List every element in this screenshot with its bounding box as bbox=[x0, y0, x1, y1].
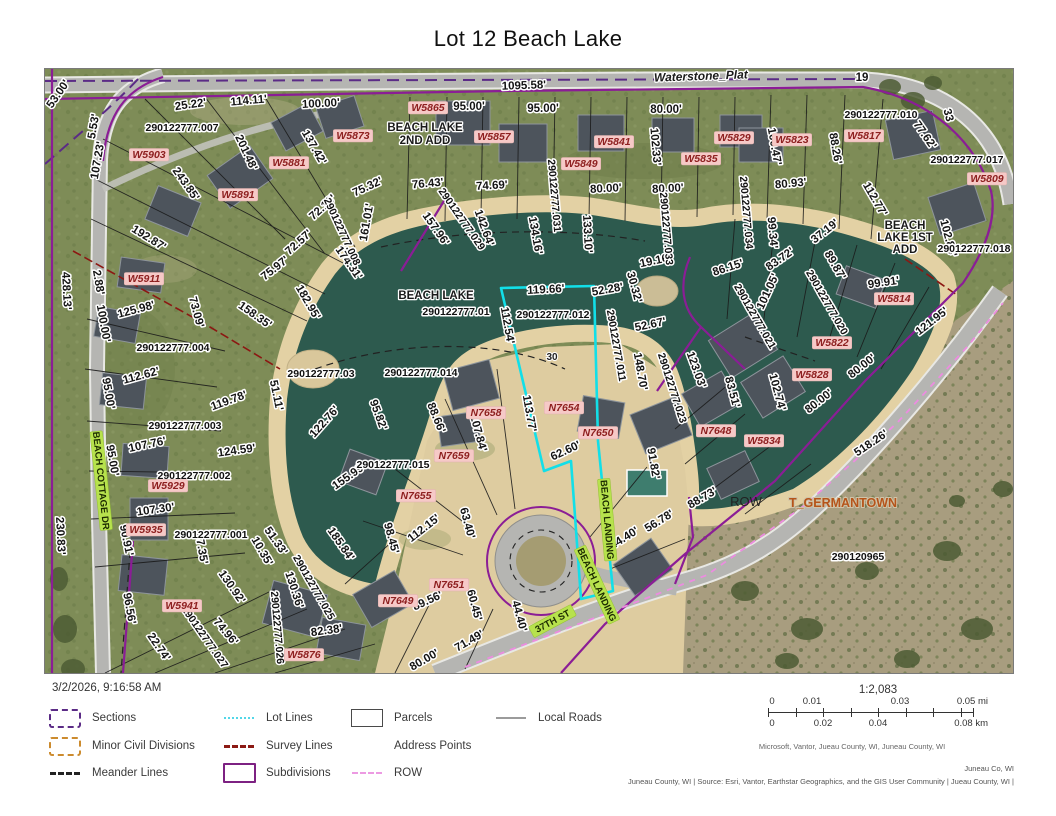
svg-text:N7655: N7655 bbox=[401, 490, 432, 502]
legend-item-sections: Sections bbox=[48, 708, 136, 728]
svg-text:W5822: W5822 bbox=[815, 337, 848, 349]
map-label-addr: W5935 bbox=[126, 524, 166, 537]
map-label-plat: LAKE 1ST bbox=[877, 232, 933, 244]
svg-text:LAKE 1ST: LAKE 1ST bbox=[877, 232, 933, 244]
scale-km-labels: 0 0.02 0.04 0.08 km bbox=[768, 718, 988, 729]
map-label-pid: 290122777.004 bbox=[137, 342, 210, 354]
svg-text:W5814: W5814 bbox=[877, 293, 910, 305]
svg-text:230.83': 230.83' bbox=[53, 517, 67, 556]
legend-item-meander-lines: Meander Lines bbox=[48, 763, 168, 783]
svg-text:W5834: W5834 bbox=[747, 435, 780, 447]
map-label-addr: N7658 bbox=[466, 407, 506, 420]
svg-text:290122777.01: 290122777.01 bbox=[422, 306, 489, 318]
map-label-addr: W5881 bbox=[269, 157, 309, 170]
svg-text:W5903: W5903 bbox=[132, 149, 165, 161]
map-label-pid: 290122777.001 bbox=[175, 529, 248, 541]
map-label-addr: W5829 bbox=[714, 132, 754, 145]
svg-text:30: 30 bbox=[546, 352, 558, 363]
map-label-addr: N7659 bbox=[434, 450, 474, 463]
county-attribution: Juneau Co, WI bbox=[964, 764, 1014, 773]
svg-text:W5828: W5828 bbox=[795, 369, 828, 381]
map-label-town: T_GERMANTOWN bbox=[789, 496, 897, 510]
legend-item-lot-lines: Lot Lines bbox=[222, 708, 313, 728]
map-label-addr: W5809 bbox=[967, 173, 1007, 186]
svg-text:N7649: N7649 bbox=[383, 595, 414, 607]
map-label-addr: W5876 bbox=[284, 649, 324, 662]
map-label-pid: 290122777.01 bbox=[422, 306, 489, 318]
survey-swatch-icon bbox=[222, 736, 256, 756]
address-points-swatch bbox=[350, 736, 384, 756]
map-label-plat: BEACH LAKE bbox=[387, 122, 463, 134]
svg-text:BEACH: BEACH bbox=[885, 220, 926, 232]
svg-text:W5835: W5835 bbox=[684, 153, 717, 165]
svg-text:290122777.001: 290122777.001 bbox=[175, 529, 248, 541]
legend-label: Local Roads bbox=[538, 712, 602, 724]
lotlines-swatch-icon bbox=[222, 708, 256, 728]
svg-text:19: 19 bbox=[856, 72, 869, 84]
aerial-map: 53.00'25.22'114.11'100.00'1095.58'95.00'… bbox=[45, 69, 1013, 673]
map-label-addr: W5873 bbox=[333, 130, 373, 143]
map-label-dim: 80.00' bbox=[650, 104, 682, 116]
meander-swatch-icon bbox=[48, 763, 82, 783]
map-label-addr: N7654 bbox=[544, 402, 584, 415]
map-label-addr: N7655 bbox=[396, 490, 436, 503]
svg-text:W5876: W5876 bbox=[287, 649, 320, 661]
svg-text:290122777.018: 290122777.018 bbox=[938, 243, 1011, 255]
svg-text:W5911: W5911 bbox=[128, 273, 161, 285]
svg-text:N7648: N7648 bbox=[701, 425, 732, 437]
map-label-addr: N7650 bbox=[578, 427, 618, 440]
legend-item-row: ROW bbox=[350, 763, 422, 783]
map-label-pid: 290122777.017 bbox=[931, 154, 1004, 166]
map-label-addr: W5817 bbox=[844, 130, 884, 143]
svg-text:W5841: W5841 bbox=[597, 136, 630, 148]
svg-text:290122777.010: 290122777.010 bbox=[845, 109, 918, 121]
svg-text:W5929: W5929 bbox=[151, 480, 184, 492]
svg-text:290122777.012: 290122777.012 bbox=[517, 309, 590, 321]
map-label-dim: 1095.58' bbox=[502, 79, 547, 93]
svg-text:N7654: N7654 bbox=[549, 402, 580, 414]
map-label-addr: W5841 bbox=[594, 136, 634, 149]
map-label-addr: W5903 bbox=[129, 149, 169, 162]
legend-label: Address Points bbox=[394, 740, 471, 752]
legend-item-subdivisions: Subdivisions bbox=[222, 763, 331, 783]
map-label-addr: W5929 bbox=[148, 480, 188, 493]
legend-label: Minor Civil Divisions bbox=[92, 740, 195, 752]
subdivisions-swatch-icon bbox=[222, 763, 256, 783]
svg-text:W5829: W5829 bbox=[717, 132, 750, 144]
map-label-dim: 19 bbox=[856, 72, 869, 84]
svg-text:W5849: W5849 bbox=[564, 158, 597, 170]
svg-text:80.00': 80.00' bbox=[650, 104, 682, 116]
scale-bar: 1:2,083 0 0.01 0.03 0.05 mi 0 0.02 0.04 … bbox=[768, 684, 988, 729]
svg-text:T_GERMANTOWN: T_GERMANTOWN bbox=[789, 496, 897, 510]
map-label-addr: W5911 bbox=[124, 273, 164, 286]
map-label-addr: W5814 bbox=[874, 293, 914, 306]
map-label-pid: 290122777.003 bbox=[149, 420, 222, 432]
map-label-pid: 290122777.018 bbox=[938, 243, 1011, 255]
svg-text:BEACH LAKE: BEACH LAKE bbox=[387, 122, 463, 134]
lake-island-pond bbox=[636, 276, 678, 306]
svg-text:133.10': 133.10' bbox=[580, 215, 594, 254]
map-label-dim: 230.83' bbox=[53, 517, 67, 556]
svg-text:W5881: W5881 bbox=[272, 157, 305, 169]
svg-text:95.00': 95.00' bbox=[527, 103, 559, 115]
svg-text:119.66': 119.66' bbox=[527, 283, 565, 297]
svg-text:290122777.03: 290122777.03 bbox=[287, 368, 354, 380]
svg-text:W5817: W5817 bbox=[847, 130, 881, 142]
map-label-plat: BEACH LAKE bbox=[398, 290, 474, 302]
map-label-dim: 428.13' bbox=[59, 272, 73, 311]
svg-text:W5857: W5857 bbox=[477, 131, 511, 143]
map-label-sm: 30 bbox=[546, 352, 558, 363]
legend-label: Sections bbox=[92, 712, 136, 724]
map-label-pid: 290122777.03 bbox=[287, 368, 354, 380]
legend-label: Subdivisions bbox=[266, 767, 331, 779]
svg-text:290122777.017: 290122777.017 bbox=[931, 154, 1004, 166]
map-label-pid: 290122777.010 bbox=[845, 109, 918, 121]
map-label-addr: N7651 bbox=[429, 579, 469, 592]
mcd-swatch-icon bbox=[48, 736, 82, 756]
svg-text:N7658: N7658 bbox=[471, 407, 502, 419]
svg-text:W5865: W5865 bbox=[411, 102, 444, 114]
map-label-addr: W5834 bbox=[744, 435, 784, 448]
page-title: Lot 12 Beach Lake bbox=[0, 26, 1056, 52]
map-label-plat: 2ND ADD bbox=[400, 135, 451, 147]
svg-text:BEACH LAKE: BEACH LAKE bbox=[398, 290, 474, 302]
legend-label: Lot Lines bbox=[266, 712, 313, 724]
svg-text:95.00': 95.00' bbox=[453, 101, 485, 113]
sections-swatch-icon bbox=[48, 708, 82, 728]
svg-text:W5809: W5809 bbox=[970, 173, 1003, 185]
timestamp: 3/2/2026, 9:16:58 AM bbox=[52, 682, 161, 694]
map-label-pid: 290122777.007 bbox=[146, 122, 219, 134]
map-label-addr: W5823 bbox=[772, 134, 812, 147]
map-label-addr: N7648 bbox=[696, 425, 736, 438]
map-label-addr: W5849 bbox=[561, 158, 601, 171]
svg-text:290122777.015: 290122777.015 bbox=[357, 459, 430, 471]
map-label-addr: W5891 bbox=[218, 189, 258, 202]
map-label-misc: ROW bbox=[730, 494, 763, 509]
legend-label: ROW bbox=[394, 767, 422, 779]
scale-bar-line bbox=[768, 708, 988, 717]
map-label-addr: W5857 bbox=[474, 131, 514, 144]
map-label-dim: 74.69' bbox=[476, 179, 508, 193]
map-label-dim: 119.66' bbox=[527, 283, 565, 297]
svg-text:1095.58': 1095.58' bbox=[502, 79, 547, 93]
svg-text:80.00': 80.00' bbox=[590, 182, 622, 196]
svg-text:290122777.004: 290122777.004 bbox=[137, 342, 210, 354]
map-label-dim: 133.10' bbox=[580, 215, 594, 254]
svg-text:ADD: ADD bbox=[893, 244, 918, 256]
svg-text:290122777.007: 290122777.007 bbox=[146, 122, 219, 134]
map-label-pid: 290122777.012 bbox=[517, 309, 590, 321]
map-label-addr: W5941 bbox=[162, 600, 202, 613]
svg-text:290120965: 290120965 bbox=[832, 551, 885, 563]
svg-text:290122777.003: 290122777.003 bbox=[149, 420, 222, 432]
map-label-addr: N7649 bbox=[378, 595, 418, 608]
svg-text:74.69': 74.69' bbox=[476, 179, 508, 193]
legend-item-survey-lines: Survey Lines bbox=[222, 736, 332, 756]
map-label-addr: W5828 bbox=[792, 369, 832, 382]
map-label-plat: ADD bbox=[893, 244, 918, 256]
legend-item-address-points: Address Points bbox=[350, 736, 471, 756]
row-swatch-icon bbox=[350, 763, 384, 783]
legend-label: Parcels bbox=[394, 712, 432, 724]
map-label-pid: 290122777.015 bbox=[357, 459, 430, 471]
svg-text:N7651: N7651 bbox=[434, 579, 465, 591]
svg-text:N7650: N7650 bbox=[583, 427, 614, 439]
scalebar-credit: Microsoft, Vantor, Jueau County, WI, Jun… bbox=[722, 742, 982, 751]
svg-text:ROW: ROW bbox=[730, 494, 763, 509]
scale-mi-labels: 0 0.01 0.03 0.05 mi bbox=[768, 696, 988, 707]
map-canvas[interactable]: 53.00'25.22'114.11'100.00'1095.58'95.00'… bbox=[44, 68, 1014, 674]
map-label-pid: 290120965 bbox=[832, 551, 885, 563]
map-label-dim: 95.00' bbox=[453, 101, 485, 113]
map-label-addr: W5835 bbox=[681, 153, 721, 166]
map-label-dim: 80.00' bbox=[590, 182, 622, 196]
legend-label: Meander Lines bbox=[92, 767, 168, 779]
map-export-page: Lot 12 Beach Lake bbox=[0, 0, 1056, 816]
map-label-plat: BEACH bbox=[885, 220, 926, 232]
svg-text:290122777.014: 290122777.014 bbox=[385, 367, 458, 379]
map-label-dim: 100.00' bbox=[302, 97, 341, 111]
svg-text:N7659: N7659 bbox=[439, 450, 470, 462]
svg-text:W5873: W5873 bbox=[336, 130, 369, 142]
svg-text:100.00': 100.00' bbox=[302, 97, 341, 111]
svg-text:W5891: W5891 bbox=[221, 189, 254, 201]
map-label-addr: W5865 bbox=[408, 102, 448, 115]
svg-text:W5941: W5941 bbox=[165, 600, 198, 612]
legend-item-parcels: Parcels bbox=[350, 708, 432, 728]
legend-label: Survey Lines bbox=[266, 740, 332, 752]
scale-ratio: 1:2,083 bbox=[768, 684, 988, 696]
local-roads-swatch-icon bbox=[494, 708, 528, 728]
map-label-pid: 290122777.014 bbox=[385, 367, 458, 379]
svg-text:W5935: W5935 bbox=[129, 524, 162, 536]
legend-item-local-roads: Local Roads bbox=[494, 708, 602, 728]
source-attribution: Juneau County, WI | Source: Esri, Vantor… bbox=[628, 777, 1014, 786]
parcels-swatch-icon bbox=[350, 708, 384, 728]
map-label-addr: W5822 bbox=[812, 337, 852, 350]
map-label-dim: 95.00' bbox=[527, 103, 559, 115]
svg-text:2ND ADD: 2ND ADD bbox=[400, 135, 451, 147]
svg-text:W5823: W5823 bbox=[775, 134, 808, 146]
legend-item-minor-civil-divisions: Minor Civil Divisions bbox=[48, 736, 195, 756]
svg-text:428.13': 428.13' bbox=[59, 272, 73, 311]
